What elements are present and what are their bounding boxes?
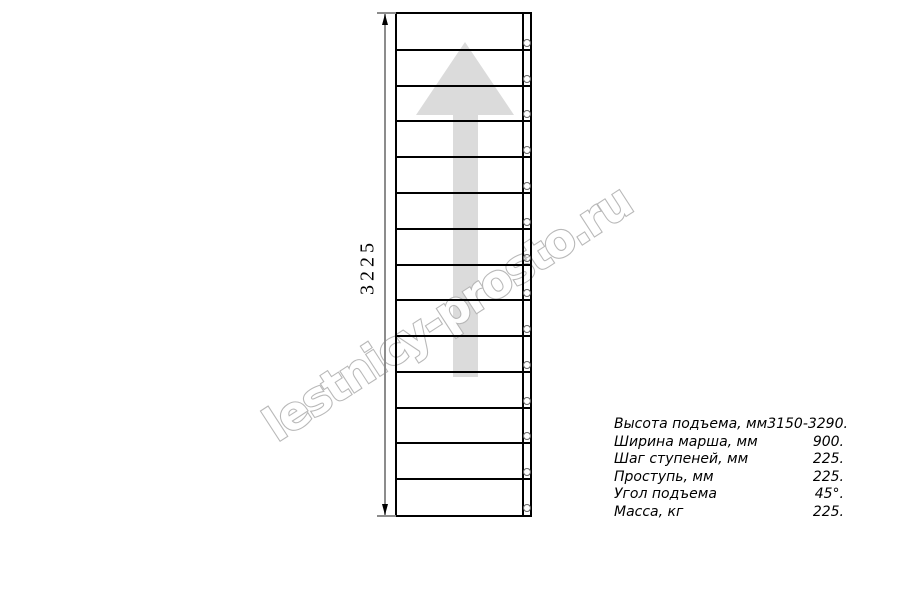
spec-value: 45°. — [815, 486, 844, 504]
spec-row: Угол подъема45°. — [614, 486, 844, 504]
dimension-arrowhead-up-icon — [382, 14, 388, 25]
spec-row: Шаг ступеней, мм225. — [614, 451, 844, 469]
spec-row: Высота подъема, мм3150-3290. — [614, 416, 844, 434]
dimension-extension-bottom — [377, 515, 396, 517]
spec-value: 225. — [813, 451, 844, 469]
spec-table: Высота подъема, мм3150-3290.Ширина марша… — [614, 416, 844, 521]
spec-label: Высота подъема, мм — [614, 416, 767, 434]
spec-label: Проступь, мм — [614, 469, 714, 487]
dimension-line — [384, 13, 386, 516]
dimension-value: 3225 — [357, 239, 380, 295]
spec-label: Масса, кг — [614, 504, 683, 522]
technical-drawing-canvas: lestnicy-prosto.ru 3225 Высота подъема, … — [0, 0, 900, 600]
dimension-arrowhead-down-icon — [382, 504, 388, 515]
spec-row: Ширина марша, мм900. — [614, 434, 844, 452]
spec-value: 225. — [813, 469, 844, 487]
spec-label: Шаг ступеней, мм — [614, 451, 748, 469]
spec-label: Угол подъема — [614, 486, 717, 504]
spec-value: 225. — [813, 504, 844, 522]
spec-row: Масса, кг225. — [614, 504, 844, 522]
spec-value: 900. — [813, 434, 844, 452]
spec-label: Ширина марша, мм — [614, 434, 758, 452]
spec-row: Проступь, мм225. — [614, 469, 844, 487]
spec-value: 3150-3290. — [767, 416, 848, 434]
